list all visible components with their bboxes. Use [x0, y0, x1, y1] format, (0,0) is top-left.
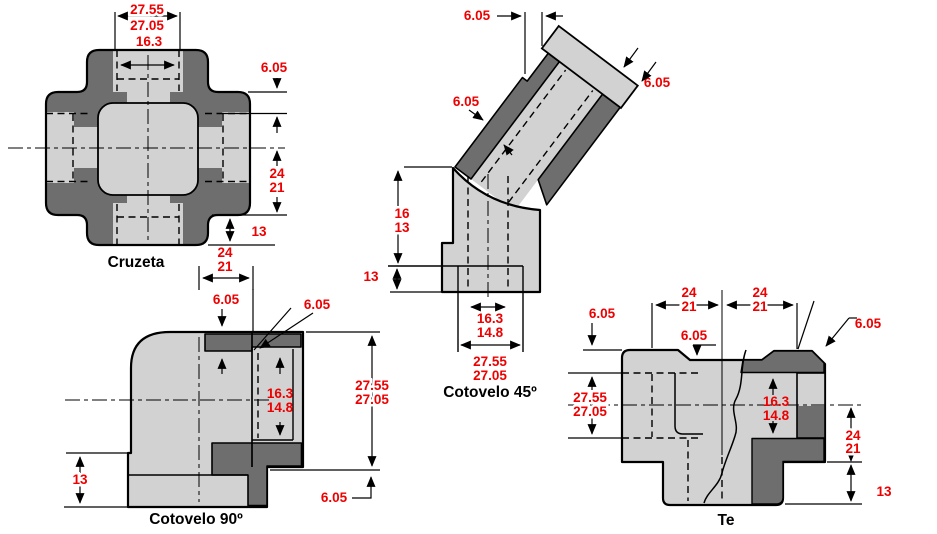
- pipe-fittings-technical-drawing: 27.55 27.05 16.3 6.05 24 21 13 24 21 Cru…: [0, 0, 937, 534]
- te-dim-corner: 6.05: [855, 316, 882, 331]
- te-dim-side-b: 21: [845, 441, 861, 456]
- cotovelo45-dim-bore-b: 14.8: [477, 325, 504, 340]
- cotovelo45-dim-width-b: 27.05: [473, 368, 507, 383]
- cotovelo90-label: Cotovelo 90º: [149, 511, 243, 528]
- cotovelo90-body: [128, 332, 303, 507]
- cotovelo90-dim-corner: 6.05: [304, 297, 331, 312]
- te-right-boss-lower-section: [797, 406, 825, 438]
- te-upper-thread-band: [741, 351, 824, 373]
- te-dim-height-a: 27.55: [573, 390, 607, 405]
- cotovelo90-figure: 16.3 14.8 6.05 6.05 27.55 27.05 13 6.05 …: [64, 289, 389, 528]
- cotovelo45-figure: 16 13 13 16.3 14.8 27.55 27.05 6.05 6.05…: [363, 8, 670, 401]
- te-dim-bore-b: 14.8: [763, 408, 790, 423]
- te-dim-edge: 6.05: [589, 306, 616, 321]
- cotovelo90-dim-bore-a: 16.3: [267, 386, 294, 401]
- cotovelo45-dim-step: 6.05: [464, 8, 491, 23]
- te-lower-thread-band: [752, 439, 824, 505]
- cruzeta-dim-half-b: 21: [269, 180, 285, 195]
- te-figure: 24 21 24 21 6.05 6.05 6.05 27.55 27.05 1…: [568, 285, 892, 529]
- cotovelo45-dim-base: 13: [363, 269, 379, 284]
- cruzeta-dim-bore: 16.3: [136, 34, 163, 49]
- cotovelo90-dim-height-b: 27.05: [355, 392, 389, 407]
- cotovelo45-dim-height-a: 16: [394, 206, 410, 221]
- te-dim-left-a: 24: [681, 285, 697, 300]
- cruzeta-label: Cruzeta: [108, 254, 165, 271]
- cruzeta-dim-thread: 13: [251, 224, 267, 239]
- te-dim-right-a: 24: [752, 285, 768, 300]
- te-dim-left-b: 21: [681, 299, 697, 314]
- drawing-canvas: 27.55 27.05 16.3 6.05 24 21 13 24 21 Cru…: [0, 0, 937, 534]
- cotovelo45-dim-bore-a: 16.3: [477, 311, 504, 326]
- cotovelo90-dim-bore-b: 14.8: [267, 400, 294, 415]
- cotovelo45-dim-height-b: 13: [394, 220, 410, 235]
- cruzeta-figure: 27.55 27.05 16.3 6.05 24 21 13 24 21 Cru…: [8, 2, 288, 290]
- te-dim-height-b: 27.05: [573, 404, 607, 419]
- cruzeta-dim-width-a: 27.55: [130, 2, 164, 17]
- te-label: Te: [718, 512, 735, 529]
- cruzeta-dim-wall: 6.05: [261, 60, 288, 75]
- cotovelo90-dim-base: 13: [72, 472, 88, 487]
- te-dim-base: 13: [876, 484, 892, 499]
- cotovelo45-dim-width-a: 27.55: [473, 354, 507, 369]
- cotovelo45-dim-cap: 6.05: [644, 75, 671, 90]
- te-dim-bore-a: 16.3: [763, 394, 790, 409]
- cotovelo45-dim-wall: 6.05: [453, 94, 480, 109]
- cotovelo90-dim-height-a: 27.55: [355, 378, 389, 393]
- te-dim-center: 6.05: [681, 328, 708, 343]
- cotovelo90-dim-lip: 6.05: [321, 490, 348, 505]
- cotovelo90-dim-top: 6.05: [213, 292, 240, 307]
- cruzeta-dim-half-a: 24: [269, 166, 285, 181]
- te-body: [622, 350, 825, 505]
- te-dim-right-b: 21: [752, 299, 768, 314]
- cruzeta-dim-bottom-b: 21: [217, 259, 233, 274]
- cotovelo45-label: Cotovelo 45º: [443, 384, 537, 401]
- cruzeta-dim-width-b: 27.05: [130, 18, 164, 33]
- cruzeta-dim-bottom-a: 24: [217, 245, 233, 260]
